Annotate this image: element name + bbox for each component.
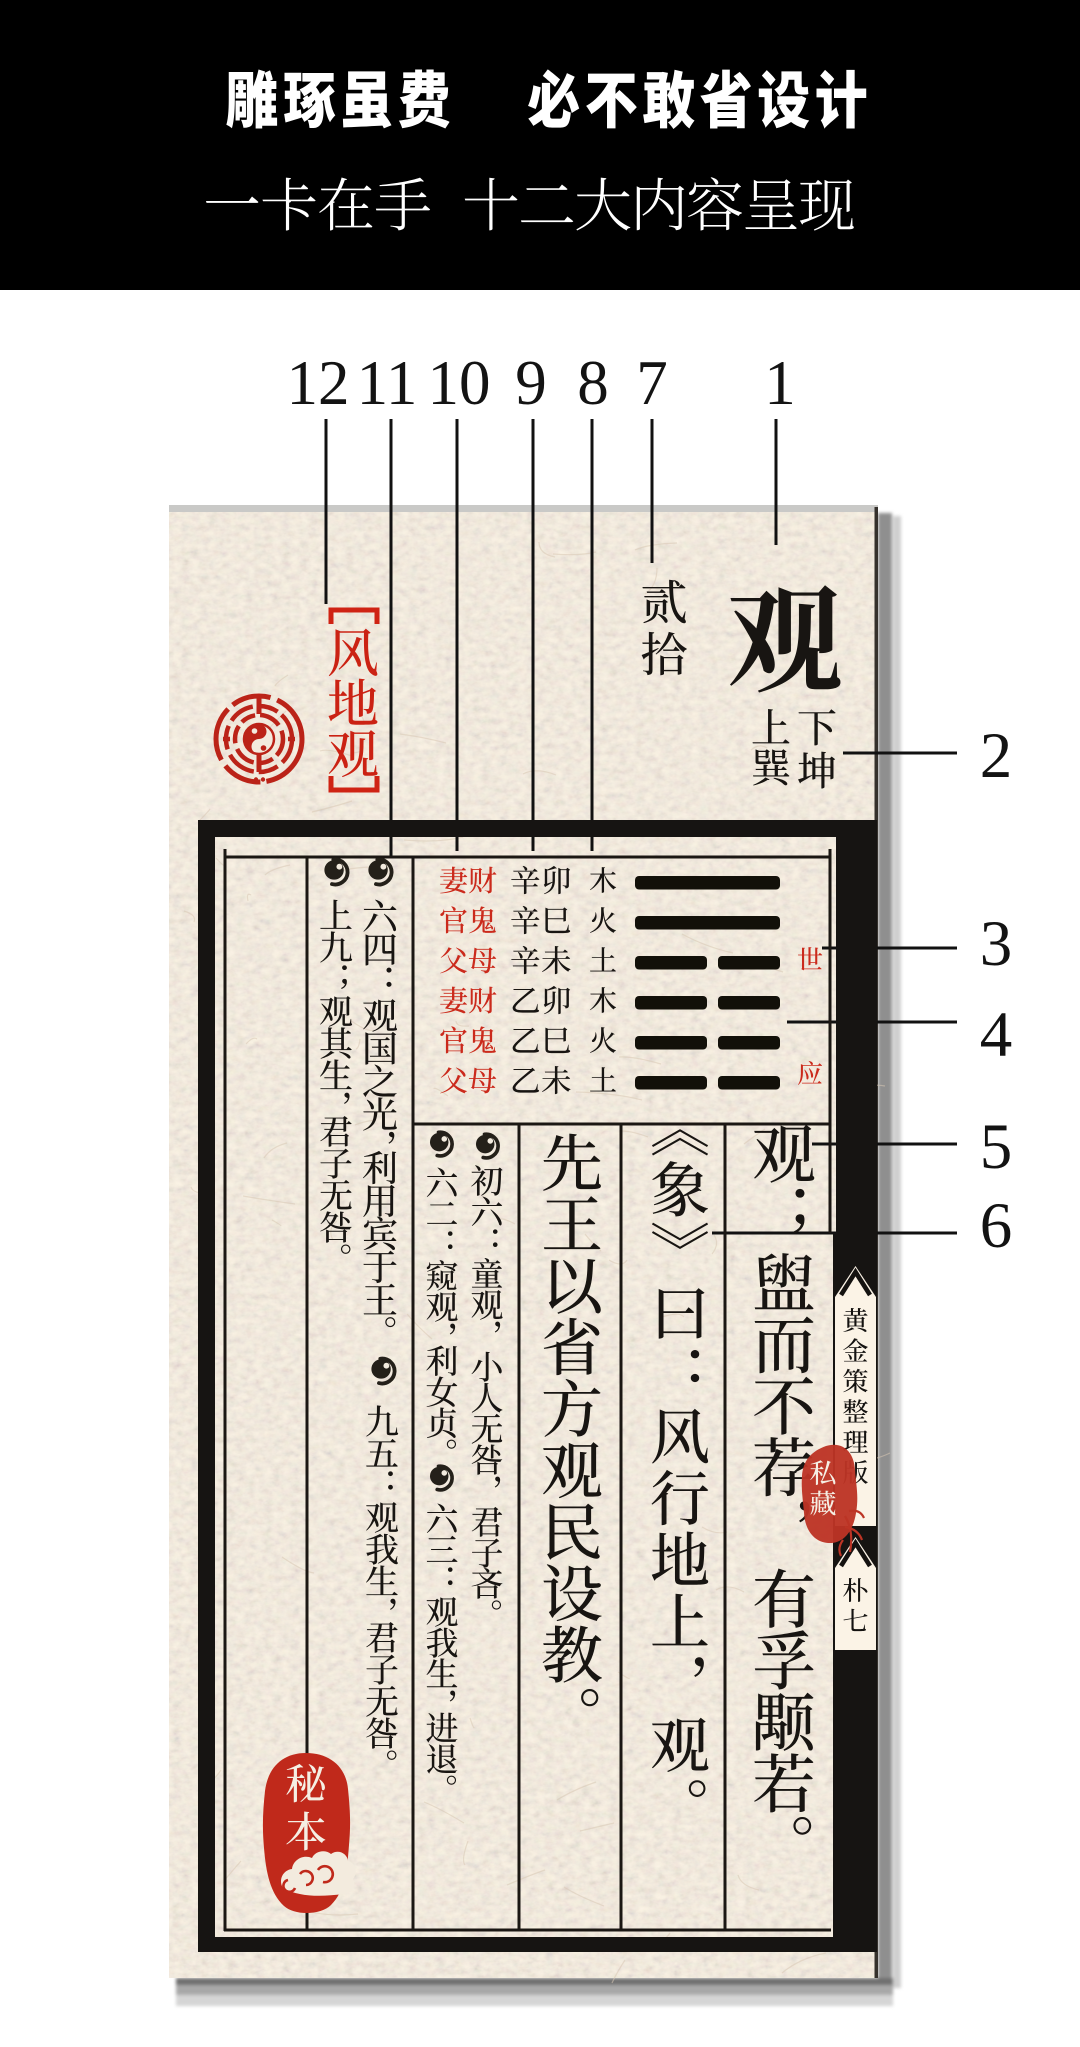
svg-text:9: 9 xyxy=(515,348,547,418)
svg-text:5: 5 xyxy=(980,1111,1013,1183)
svg-text:10: 10 xyxy=(428,348,491,418)
svg-text:7: 7 xyxy=(636,348,668,418)
svg-text:3: 3 xyxy=(980,908,1013,980)
svg-text:11: 11 xyxy=(357,348,418,418)
svg-text:6: 6 xyxy=(980,1190,1013,1262)
svg-text:2: 2 xyxy=(980,720,1013,792)
svg-text:1: 1 xyxy=(764,348,796,418)
svg-text:8: 8 xyxy=(577,348,609,418)
svg-text:4: 4 xyxy=(980,999,1013,1071)
svg-text:12: 12 xyxy=(287,348,350,418)
